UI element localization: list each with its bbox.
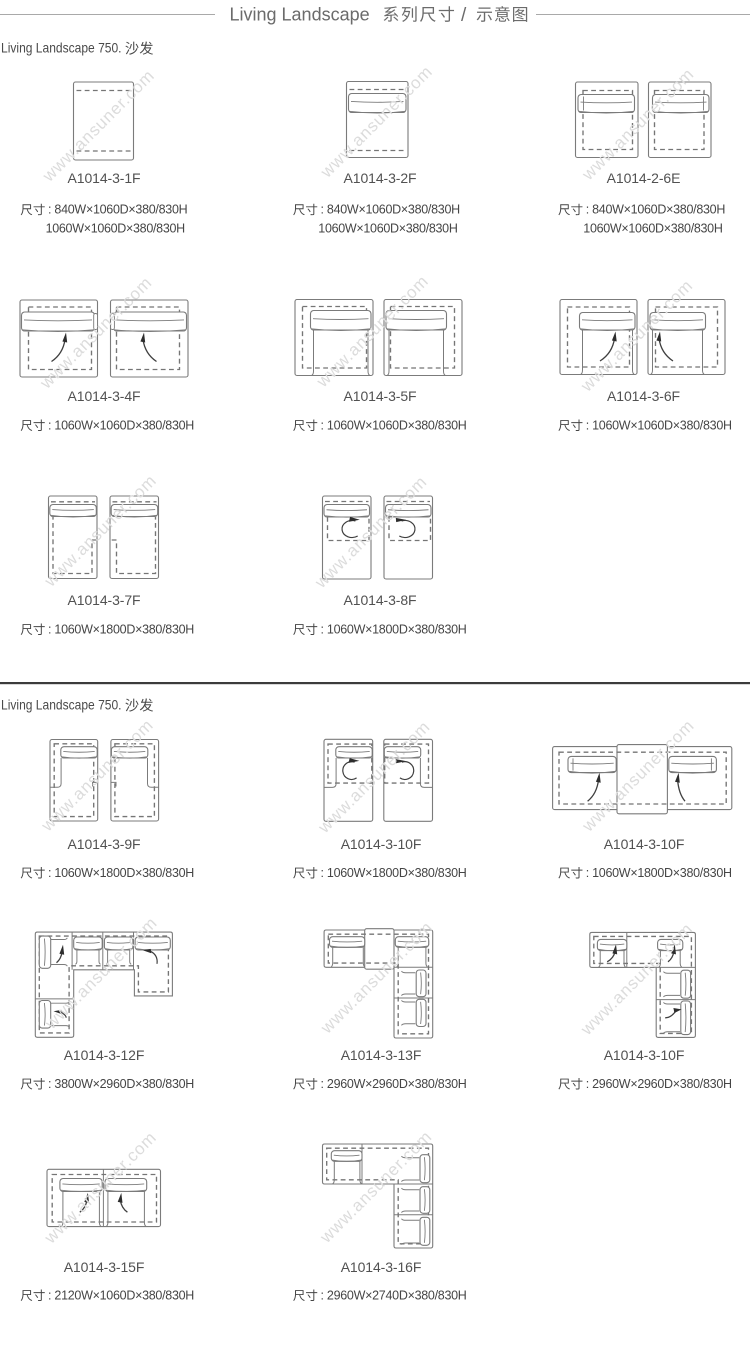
svg-text:: 1060W×1060D×380/830H: : 1060W×1060D×380/830H (318, 419, 467, 433)
svg-text:Living Landscape: Living Landscape (230, 4, 370, 24)
svg-text:A1014-2-6E: A1014-2-6E (607, 170, 681, 186)
svg-text:: 840W×1060D×380/830H: : 840W×1060D×380/830H (318, 203, 460, 217)
svg-text:A1014-3-10F: A1014-3-10F (604, 1047, 685, 1063)
svg-text:: 1060W×1060D×380/830H: : 1060W×1060D×380/830H (46, 419, 195, 433)
svg-text:1060W×1060D×380/830H: 1060W×1060D×380/830H (318, 222, 458, 236)
svg-text:Living Landscape 750.: Living Landscape 750. (1, 40, 122, 56)
svg-text:: 2960W×2960D×380/830H: : 2960W×2960D×380/830H (318, 1077, 467, 1091)
svg-text:: 2960W×2960D×380/830H: : 2960W×2960D×380/830H (584, 1077, 733, 1091)
svg-text:Living Landscape 750.: Living Landscape 750. (1, 697, 122, 713)
svg-text:A1014-3-7F: A1014-3-7F (68, 592, 141, 608)
svg-text:: 1060W×1800D×380/830H: : 1060W×1800D×380/830H (318, 866, 467, 880)
svg-text:A1014-3-8F: A1014-3-8F (344, 592, 417, 608)
svg-text:: 1060W×1800D×380/830H: : 1060W×1800D×380/830H (46, 623, 195, 637)
svg-text:A1014-3-5F: A1014-3-5F (344, 388, 417, 404)
svg-text:: 1060W×1800D×380/830H: : 1060W×1800D×380/830H (584, 866, 733, 880)
svg-text:A1014-3-6F: A1014-3-6F (607, 388, 680, 404)
svg-text:: 840W×1060D×380/830H: : 840W×1060D×380/830H (46, 203, 188, 217)
svg-text:A1014-3-4F: A1014-3-4F (68, 388, 141, 404)
svg-text:A1014-3-12F: A1014-3-12F (64, 1047, 145, 1063)
svg-text:A1014-3-16F: A1014-3-16F (341, 1259, 422, 1275)
svg-text:A1014-3-9F: A1014-3-9F (68, 836, 141, 852)
svg-text:www.ansuner.com: www.ansuner.com (316, 62, 436, 182)
svg-text:1060W×1060D×380/830H: 1060W×1060D×380/830H (583, 222, 723, 236)
svg-text:A1014-3-10F: A1014-3-10F (341, 836, 422, 852)
svg-text:: 2120W×1060D×380/830H: : 2120W×1060D×380/830H (46, 1289, 195, 1303)
svg-text:: 1060W×1060D×380/830H: : 1060W×1060D×380/830H (584, 419, 733, 433)
svg-text:A1014-3-10F: A1014-3-10F (604, 836, 685, 852)
svg-text:A1014-3-15F: A1014-3-15F (64, 1259, 145, 1275)
svg-text:: 1060W×1800D×380/830H: : 1060W×1800D×380/830H (318, 623, 467, 637)
svg-text:: 1060W×1800D×380/830H: : 1060W×1800D×380/830H (46, 866, 195, 880)
svg-text:: 2960W×2740D×380/830H: : 2960W×2740D×380/830H (318, 1289, 467, 1303)
svg-text:A1014-3-13F: A1014-3-13F (341, 1047, 422, 1063)
svg-text:A1014-3-1F: A1014-3-1F (68, 170, 141, 186)
svg-text:: 840W×1060D×380/830H: : 840W×1060D×380/830H (584, 203, 726, 217)
svg-text:A1014-3-2F: A1014-3-2F (344, 170, 417, 186)
svg-text:: 3800W×2960D×380/830H: : 3800W×2960D×380/830H (46, 1077, 195, 1091)
svg-text:1060W×1060D×380/830H: 1060W×1060D×380/830H (46, 222, 186, 236)
svg-text:/: / (461, 5, 467, 26)
